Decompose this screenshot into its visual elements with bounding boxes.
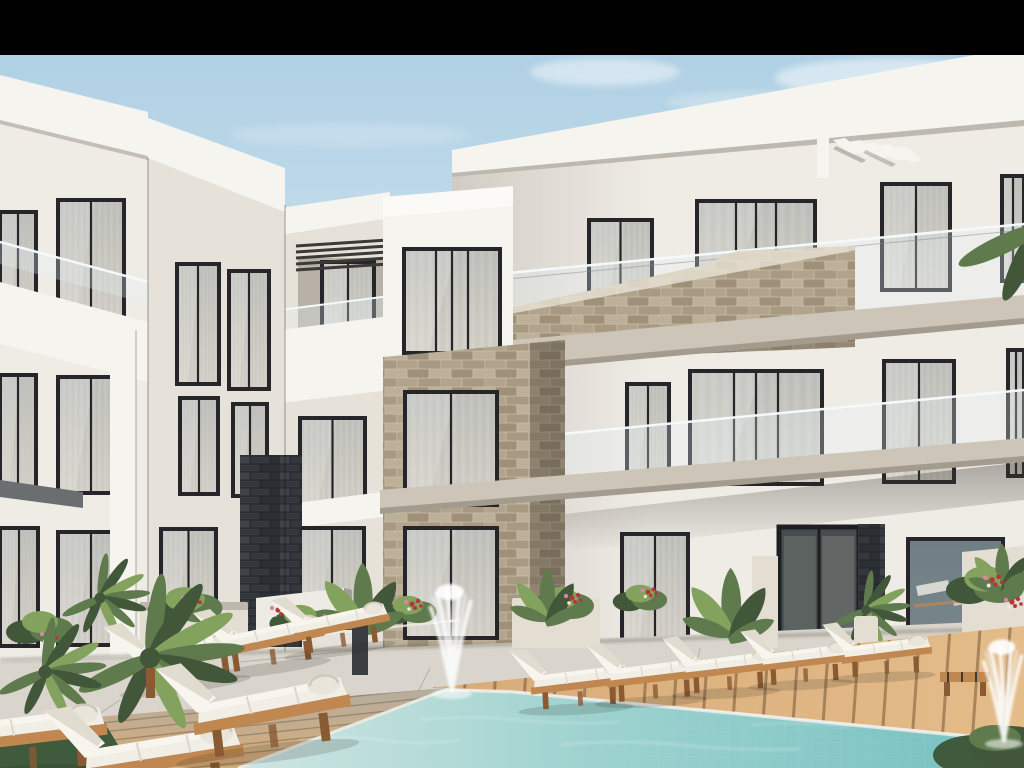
window: [177, 264, 219, 384]
window: [0, 375, 36, 493]
building-left-tower-b: [148, 118, 302, 660]
render-stage: [0, 0, 1024, 768]
plant-pot: [854, 616, 878, 644]
letterbox-top: [0, 0, 1024, 55]
building-left: [0, 75, 302, 666]
window: [229, 271, 269, 389]
palm-trunk: [146, 668, 155, 698]
architectural-render: [0, 0, 1024, 768]
window: [180, 398, 218, 494]
building-middle-tower: [383, 186, 513, 362]
balcony-parapet: [280, 316, 390, 403]
building-left-tower-a: [0, 75, 148, 666]
window: [404, 249, 500, 353]
